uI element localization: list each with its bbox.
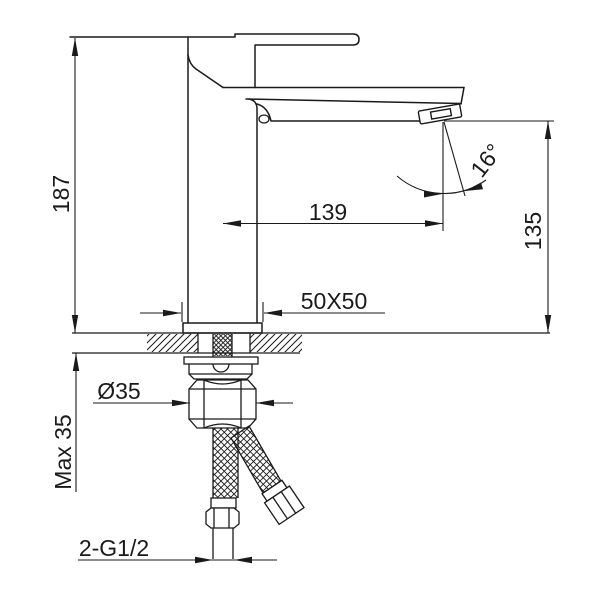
counter-hatch-right xyxy=(250,334,302,352)
faucet-outline xyxy=(70,34,464,323)
drawing-canvas: 187 139 16° 135 50X50 Ø35 Max 35 2-G1/2 xyxy=(0,0,600,600)
spout-set-screw xyxy=(259,115,269,123)
fixing-washer xyxy=(184,357,258,364)
dim-label-spout-reach: 139 xyxy=(309,199,347,225)
inlet-tube xyxy=(213,528,233,559)
hose-collar xyxy=(211,498,236,508)
handle-lever xyxy=(70,34,359,88)
dim-ext-50x50 xyxy=(182,302,263,322)
dim-label-outlet-height: 135 xyxy=(520,212,546,250)
dim-label-outlet-angle: 16° xyxy=(465,139,507,182)
fixing-assembly xyxy=(184,357,258,428)
body-right-edge xyxy=(249,99,257,323)
mounting-nut xyxy=(189,380,256,428)
dim-label-overall-height: 187 xyxy=(48,175,74,213)
handle-skirt xyxy=(188,55,223,88)
dim-label-inlet-connections: 2-G1/2 xyxy=(79,535,149,561)
base-plate xyxy=(183,323,262,333)
ref-line-16deg xyxy=(444,122,465,196)
counter-hatch-left xyxy=(147,334,198,352)
spout-underside xyxy=(257,104,421,121)
dim-label-nut-diameter: Ø35 xyxy=(97,378,140,404)
dim-label-max-deck-thickness: Max 35 xyxy=(50,414,76,489)
countertop xyxy=(72,333,550,357)
hose-hex-nut xyxy=(206,508,239,528)
supply-hoses xyxy=(206,426,304,559)
dim-label-base-footprint: 50X50 xyxy=(301,288,368,314)
faucet-technical-drawing: 187 139 16° 135 50X50 Ø35 Max 35 2-G1/2 xyxy=(0,0,600,600)
angle-arc xyxy=(397,176,486,193)
